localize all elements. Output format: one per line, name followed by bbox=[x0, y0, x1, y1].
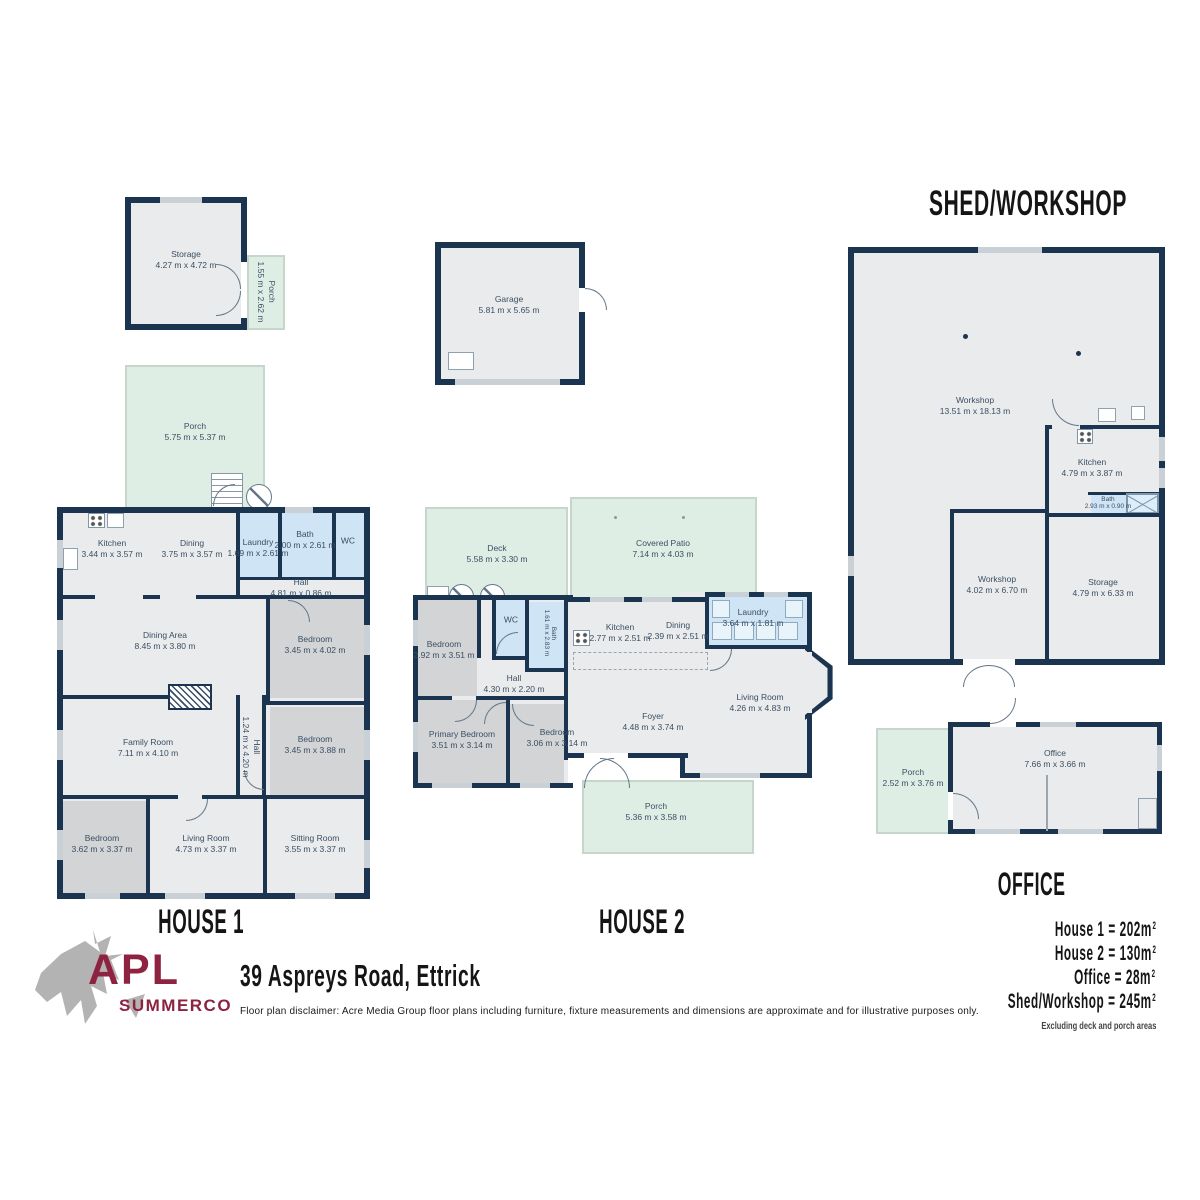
house2-bath-label: Bath 1.61 m x 2.83 m bbox=[543, 610, 557, 657]
window bbox=[57, 830, 63, 860]
window bbox=[364, 625, 370, 655]
logo-subtext: SUMMERCO bbox=[119, 996, 232, 1016]
window bbox=[975, 829, 1020, 834]
wall bbox=[146, 799, 150, 893]
house2-kitchen-label: Kitchen 2.77 m x 2.51 m bbox=[590, 622, 651, 644]
office-room-label: Office 7.66 m x 3.66 m bbox=[1025, 748, 1086, 770]
shed-title: SHED/WORKSHOP bbox=[863, 184, 1163, 224]
partition bbox=[1046, 775, 1048, 831]
house2-hall-label: Hall 4.30 m x 2.20 m bbox=[484, 673, 545, 695]
house1-bedroom1-label: Bedroom 3.45 m x 4.02 m bbox=[285, 634, 346, 656]
wall bbox=[529, 668, 568, 672]
shed-bath-label: Bath 2.93 m x 0.90 m bbox=[1085, 496, 1132, 510]
door-opening bbox=[241, 262, 247, 318]
window bbox=[848, 556, 854, 576]
wall bbox=[266, 597, 270, 703]
sink-icon bbox=[107, 513, 124, 528]
house1-kitchen-label: Kitchen 3.44 m x 3.57 m bbox=[82, 538, 143, 560]
garage-door bbox=[455, 379, 560, 385]
fixture-box bbox=[448, 352, 474, 370]
window bbox=[413, 722, 418, 752]
wall bbox=[492, 656, 529, 660]
house2-porch-label: Porch 5.36 m x 3.58 m bbox=[626, 801, 687, 823]
window bbox=[57, 620, 63, 650]
door-opening bbox=[160, 595, 196, 599]
house1-bedroom3-label: Bedroom 3.62 m x 3.37 m bbox=[72, 833, 133, 855]
fixture-box bbox=[1098, 408, 1116, 422]
bay-opening bbox=[805, 652, 812, 713]
door-opening bbox=[95, 595, 143, 599]
summary-office: Office = 28m2 bbox=[1010, 966, 1156, 990]
house2-foyer-label: Foyer 4.48 m x 3.74 m bbox=[623, 711, 684, 733]
house1-wc-label: WC bbox=[341, 535, 355, 546]
cabinet bbox=[785, 600, 803, 618]
address: 39 Aspreys Road, Ettrick bbox=[240, 958, 760, 994]
fridge-icon bbox=[63, 548, 78, 570]
window bbox=[1040, 722, 1076, 727]
floor-plan-sheet: Storage 4.27 m x 4.72 m Porch 1.55 m x 2… bbox=[0, 0, 1200, 1200]
stove-icon bbox=[88, 513, 105, 528]
door-arc bbox=[585, 288, 607, 310]
roller-door-opening bbox=[978, 247, 1042, 253]
window bbox=[1159, 468, 1165, 488]
window bbox=[725, 592, 749, 597]
house2-patio-label: Covered Patio 7.14 m x 4.03 m bbox=[633, 538, 694, 560]
house2-title: HOUSE 2 bbox=[492, 903, 792, 942]
window bbox=[57, 730, 63, 760]
door-arc bbox=[963, 665, 989, 687]
house1-bedroom2-label: Bedroom 3.45 m x 3.88 m bbox=[285, 734, 346, 756]
wall bbox=[950, 509, 954, 662]
storage-room-label: Storage 4.27 m x 4.72 m bbox=[156, 249, 217, 271]
window bbox=[520, 783, 550, 788]
office-title: OFFICE bbox=[882, 866, 1182, 903]
fireplace bbox=[168, 684, 212, 710]
summary-house1: House 1 = 202m2 bbox=[975, 918, 1156, 942]
house1-hall-mid-label: Hall 1.24 m x 4.20 m bbox=[240, 717, 262, 778]
summary-house2: House 2 = 130m2 bbox=[975, 942, 1156, 966]
window bbox=[57, 540, 63, 568]
wall bbox=[1045, 513, 1159, 517]
summary-shed: Shed/Workshop = 245m2 bbox=[891, 990, 1156, 1014]
storage-porch-label: Porch 1.55 m x 2.62 m bbox=[255, 262, 277, 323]
window bbox=[1159, 437, 1165, 461]
wall bbox=[57, 795, 365, 799]
house2-dining-label: Dining 2.39 m x 2.51 m bbox=[648, 620, 709, 642]
door-opening bbox=[584, 753, 628, 758]
door-arc bbox=[990, 698, 1016, 724]
wall bbox=[950, 509, 1049, 513]
window bbox=[85, 893, 120, 899]
wall bbox=[266, 701, 364, 705]
fixture-box bbox=[1131, 406, 1145, 420]
window bbox=[160, 197, 202, 203]
house1-living-label: Living Room 4.73 m x 3.37 m bbox=[176, 833, 237, 855]
house1-dining-area-label: Dining Area 8.45 m x 3.80 m bbox=[135, 630, 196, 652]
house2-bedroom2-label: Bedroom 3.06 m x 3.14 m bbox=[527, 727, 588, 749]
office-porch-label: Porch 2.52 m x 3.76 m bbox=[883, 767, 944, 789]
kitchen-counter bbox=[573, 652, 708, 670]
house2-living-label: Living Room 4.26 m x 4.83 m bbox=[730, 692, 791, 714]
shed-workshop2-label: Workshop 4.02 m x 6.70 m bbox=[967, 574, 1028, 596]
window bbox=[364, 840, 370, 868]
window bbox=[1157, 745, 1162, 771]
shed-storage-label: Storage 4.79 m x 6.33 m bbox=[1073, 577, 1134, 599]
house2-deck-label: Deck 5.58 m x 3.30 m bbox=[467, 543, 528, 565]
wall bbox=[263, 799, 267, 893]
house1-family-label: Family Room 7.11 m x 4.10 m bbox=[118, 737, 178, 759]
house1-sitting-label: Sitting Room 3.55 m x 3.37 m bbox=[285, 833, 346, 855]
wall bbox=[566, 597, 708, 602]
disclaimer: Floor plan disclaimer: Acre Media Group … bbox=[240, 1006, 979, 1017]
step bbox=[1138, 798, 1157, 829]
summary-note: Excluding deck and porch areas bbox=[1003, 1016, 1156, 1034]
window bbox=[700, 773, 760, 778]
door-arc bbox=[600, 758, 630, 788]
window bbox=[295, 893, 335, 899]
door-arc bbox=[989, 665, 1015, 687]
office-building bbox=[948, 722, 1162, 834]
house1-hall-label: Hall 4.81 m x 0.86 m bbox=[271, 577, 332, 599]
window bbox=[364, 730, 370, 760]
wall bbox=[477, 598, 481, 658]
house1-bath-label: Bath 2.00 m x 2.61 m bbox=[275, 529, 336, 551]
window bbox=[432, 783, 472, 788]
stove-icon bbox=[1077, 429, 1093, 444]
window bbox=[764, 592, 788, 597]
post-dot bbox=[1076, 351, 1081, 356]
window bbox=[165, 893, 205, 899]
window bbox=[1058, 829, 1103, 834]
post-dot bbox=[963, 334, 968, 339]
window bbox=[590, 597, 624, 602]
stove-icon bbox=[573, 630, 590, 646]
house1-dining-label: Dining 3.75 m x 3.57 m bbox=[162, 538, 223, 560]
logo-text: APL bbox=[88, 946, 180, 995]
window bbox=[642, 597, 672, 602]
shed-kitchen-label: Kitchen 4.79 m x 3.87 m bbox=[1062, 457, 1123, 479]
house2-wc-label: WC bbox=[504, 614, 518, 625]
shed-workshop-label: Workshop 13.51 m x 18.13 m bbox=[940, 395, 1010, 417]
house1-porch-label: Porch 5.75 m x 5.37 m bbox=[165, 421, 226, 443]
wall bbox=[1045, 425, 1049, 662]
window bbox=[285, 507, 313, 513]
wall bbox=[57, 695, 173, 699]
post-dot bbox=[682, 516, 685, 519]
house2-laundry-label: Laundry 3.64 m x 1.81 m bbox=[723, 607, 784, 629]
garage-room-label: Garage 5.81 m x 5.65 m bbox=[479, 294, 540, 316]
house2-bedroom1-label: Bedroom 2.92 m x 3.51 m bbox=[414, 639, 475, 661]
post-dot bbox=[614, 516, 617, 519]
house2-primary-label: Primary Bedroom 3.51 m x 3.14 m bbox=[429, 729, 495, 751]
